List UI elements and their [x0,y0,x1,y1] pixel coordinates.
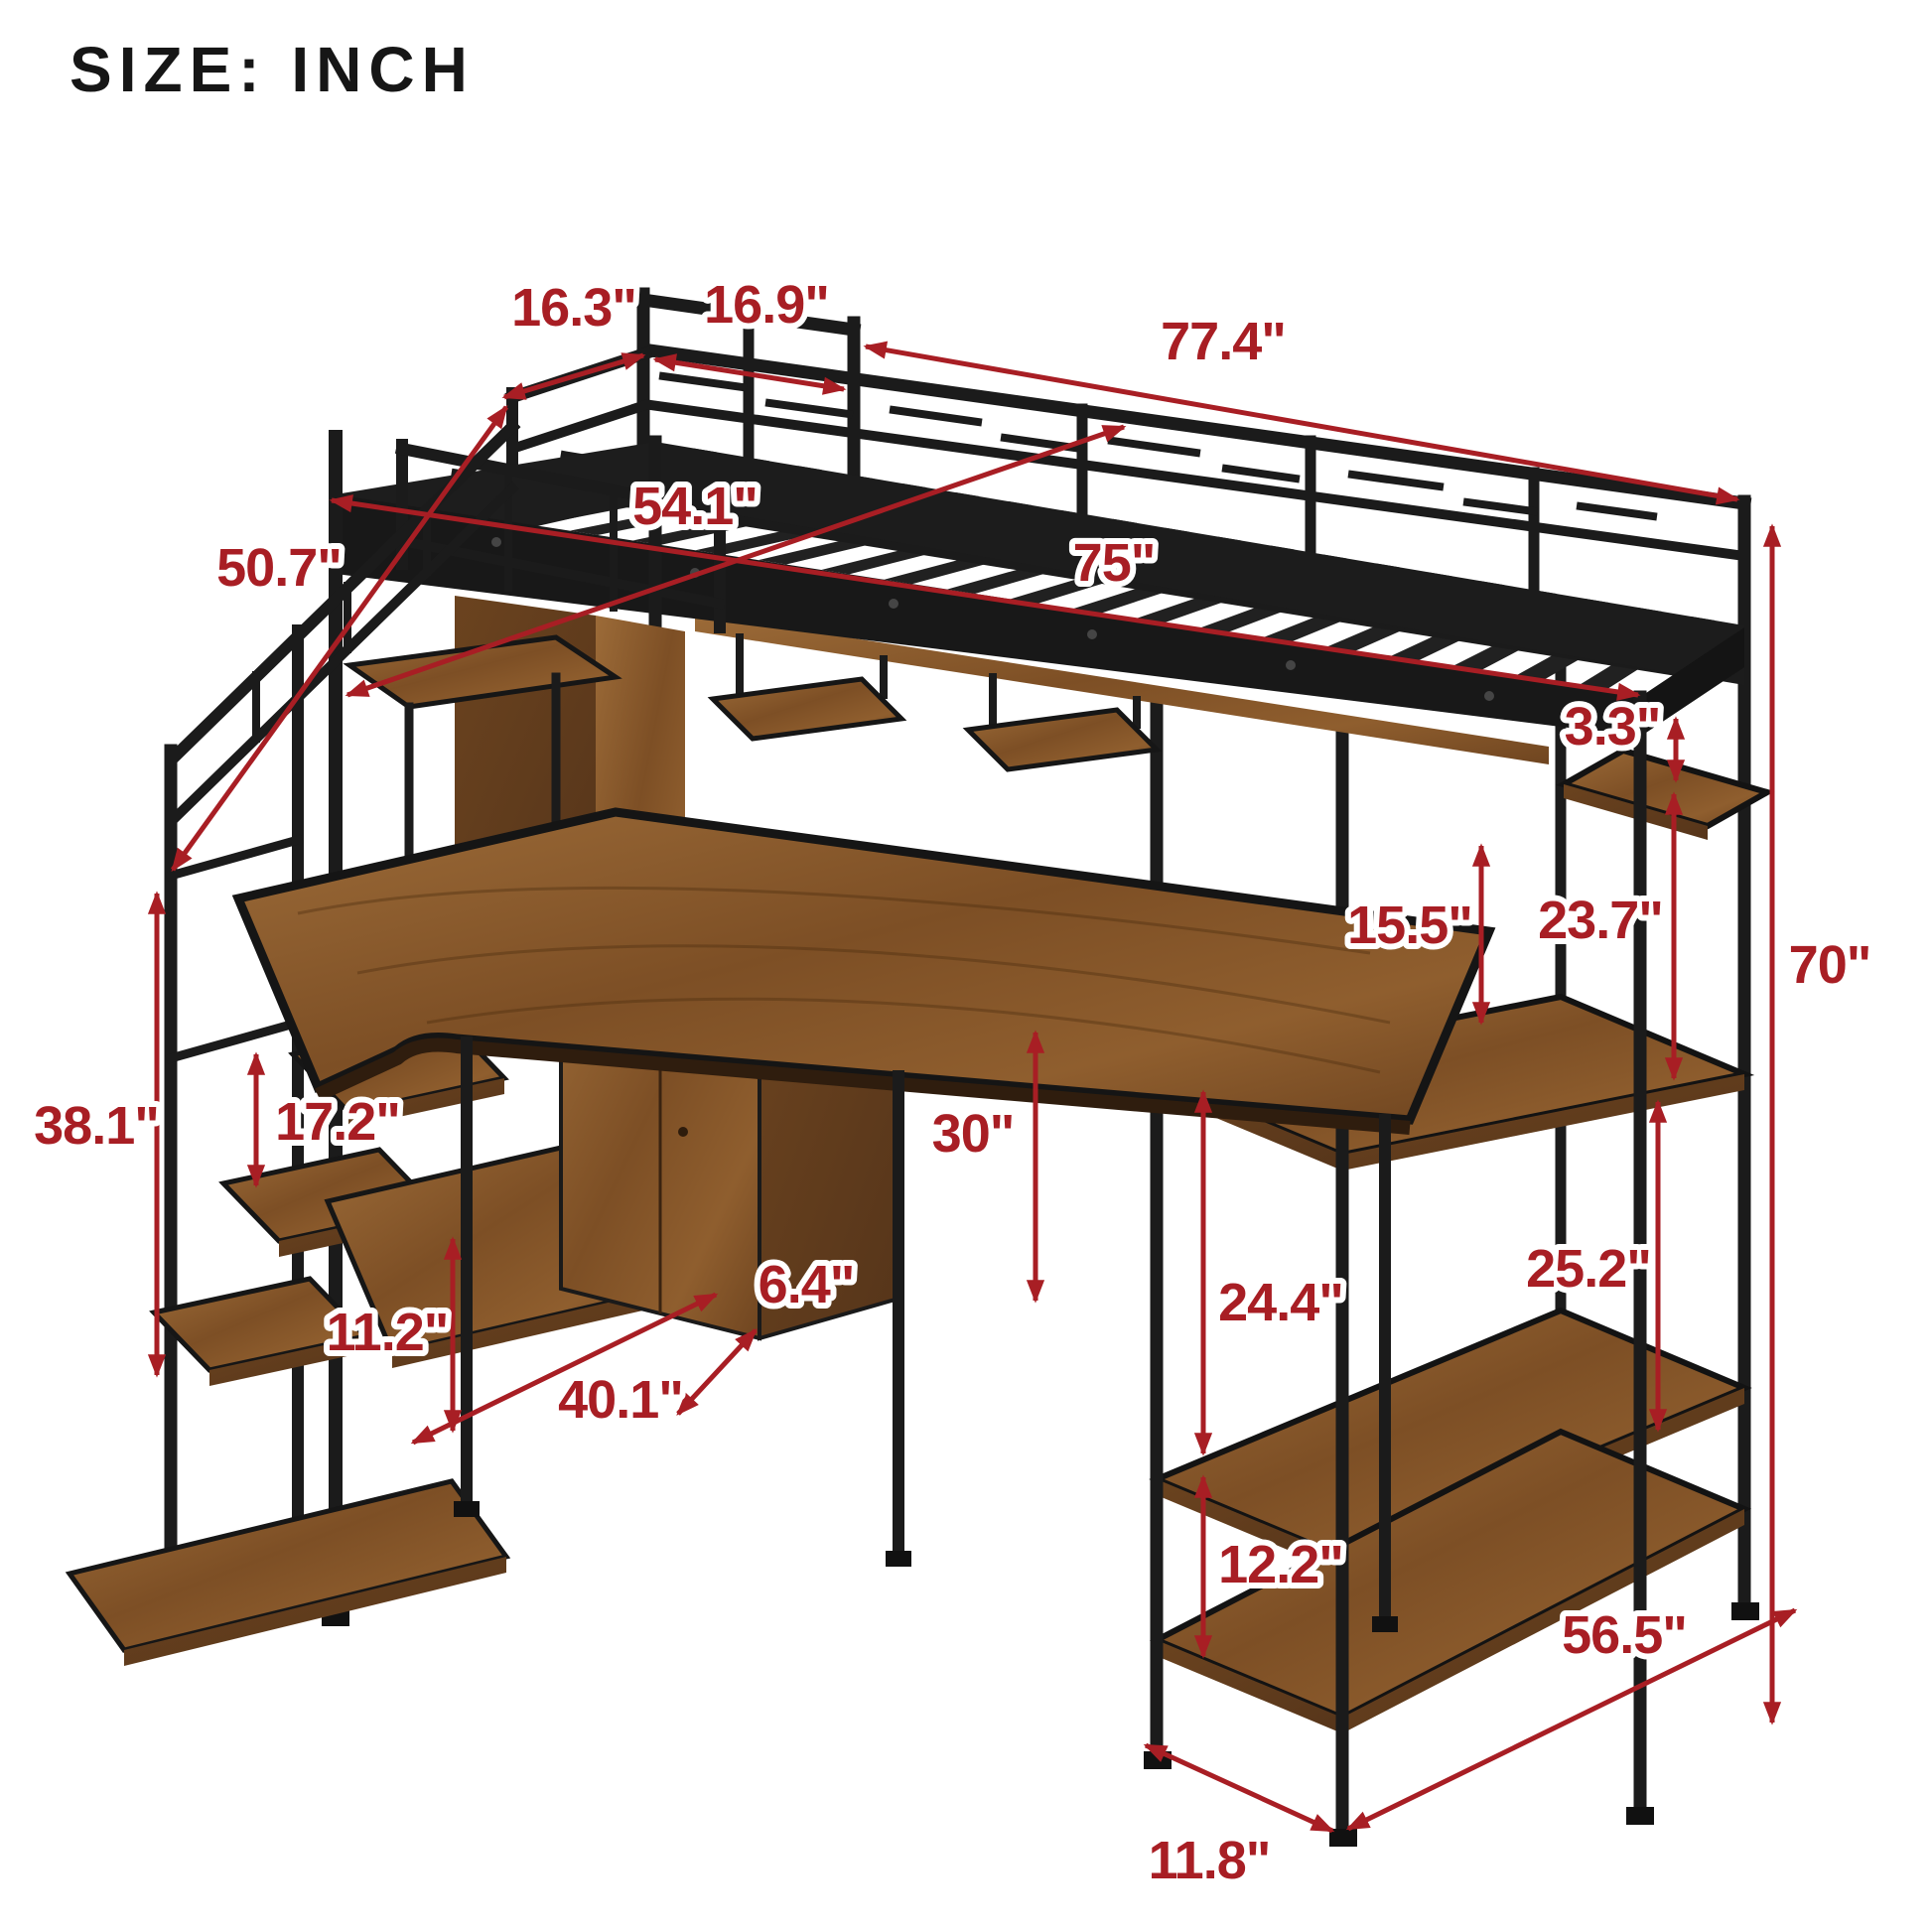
dim-label-head-rail-section: 16.9" [704,275,829,335]
dim-label-bed-width: 54.1" [632,477,758,536]
dim-label-rail-to-shelf-gap: 3.3" [1565,697,1661,757]
page-title: SIZE: INCH [69,34,475,105]
product-dimension-diagram: 16.3" 16.9" 77.4" 54.1" 50.7" 75" 3.3" 1… [0,0,1932,1932]
loft-bed-illustration [69,294,1767,1847]
dim-label-bed-to-desk-clearance: 15.5" [1347,896,1472,955]
dim-label-bottom-shelf-gap: 12.2" [1218,1535,1343,1594]
dim-label-staircase-rail-length: 50.7" [216,538,342,598]
dim-label-stair-side-height: 38.1" [34,1096,159,1156]
loft-bed-dimension-drawing: 16.3" 16.9" 77.4" 54.1" 50.7" 75" 3.3" 1… [0,0,1932,1932]
dim-label-desk-length: 40.1" [558,1370,683,1430]
dim-label-overall-length: 77.4" [1161,312,1286,371]
bottom-shelf [69,1481,506,1666]
dim-label-lower-step-gap: 11.2" [327,1303,449,1362]
dim-label-bed-length: 75" [1073,533,1156,593]
top-small-shelf [1564,751,1767,840]
dim-label-cabinet-depth: 6.4" [759,1255,855,1314]
dim-label-middle-shelf-gap: 24.4" [1218,1273,1343,1332]
dim-label-overall-height: 70" [1789,935,1871,995]
dim-label-upper-shelf-gap: 23.7" [1538,891,1663,950]
dim-label-overall-depth: 56.5" [1562,1605,1687,1665]
dim-label-shelf-depth: 11.8" [1149,1831,1271,1890]
dim-label-step-shelf-gap: 17.2" [275,1092,400,1152]
dim-label-stair-landing-depth: 16.3" [511,278,636,338]
dim-label-side-shelf-gap: 25.2" [1526,1239,1651,1299]
dim-label-desk-height: 30" [932,1104,1015,1164]
